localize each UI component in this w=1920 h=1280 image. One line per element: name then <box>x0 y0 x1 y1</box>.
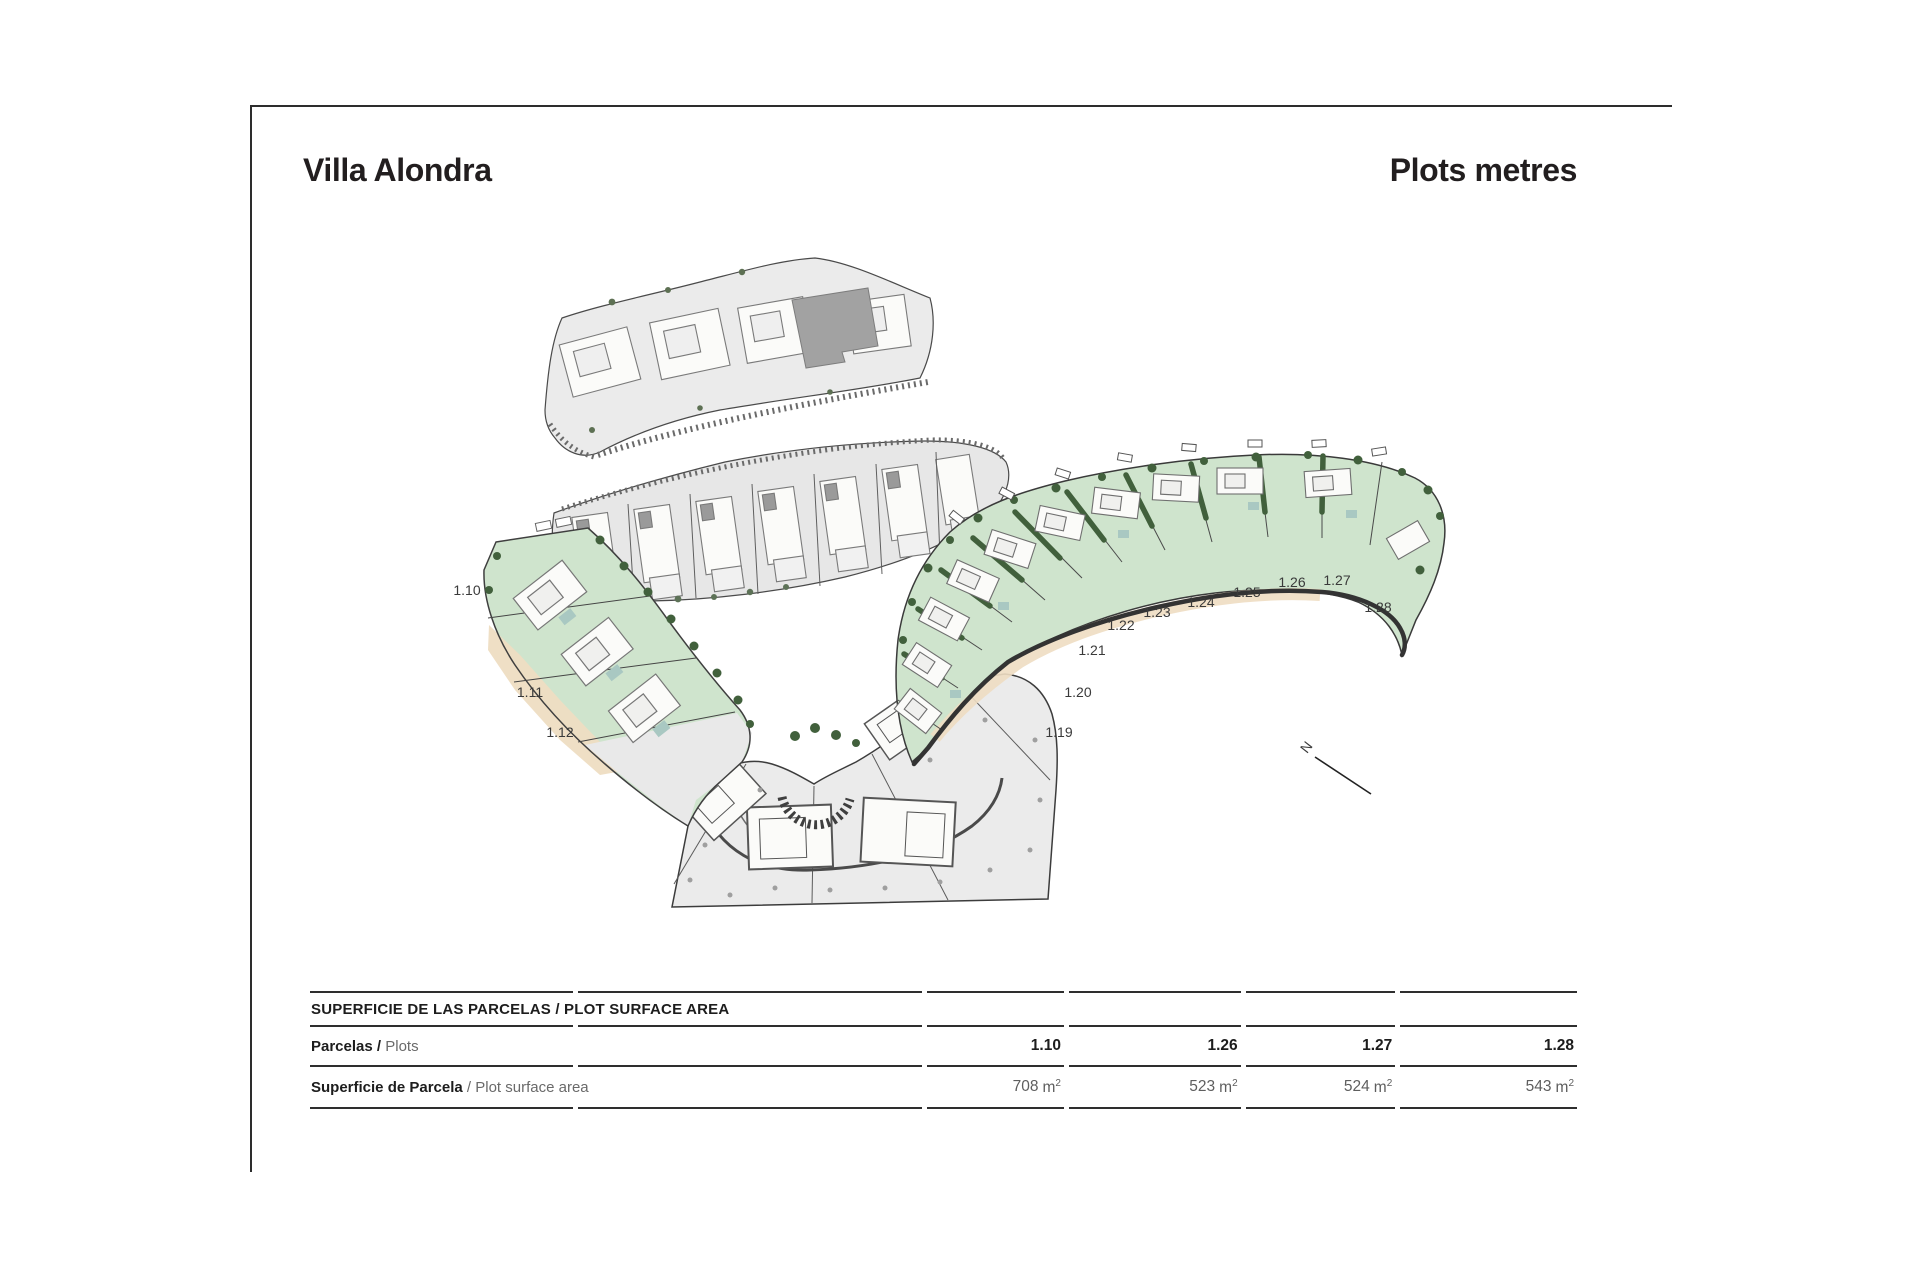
table-header-spacer <box>1069 991 1241 1027</box>
plots-row-label-es: Parcelas / <box>311 1038 381 1055</box>
table-header: SUPERFICIE DE LAS PARCELAS / PLOT SURFAC… <box>310 991 573 1027</box>
plot-number-1-27: 1.27 <box>1246 1027 1396 1067</box>
site-plan: 1.10 1.11 1.12 1.19 1.20 1.21 1.22 1.23 … <box>430 250 1490 970</box>
surface-row-label-es: Superficie de Parcela <box>311 1079 463 1096</box>
surface-row-label-en: / Plot surface area <box>467 1079 589 1096</box>
plot-label-1-10: 1.10 <box>453 582 480 598</box>
plot-label-1-12: 1.12 <box>546 724 573 740</box>
plot-label-1-22: 1.22 <box>1107 617 1134 633</box>
plot-label-1-26: 1.26 <box>1278 574 1305 590</box>
notch-trees <box>790 723 860 747</box>
north-label: N <box>1297 738 1316 756</box>
surface-row-label: Superficie de Parcela / Plot surface are… <box>310 1067 573 1109</box>
plot-number-1-10: 1.10 <box>927 1027 1064 1067</box>
plot-label-1-19: 1.19 <box>1045 724 1072 740</box>
table-header-spacer <box>1246 991 1396 1027</box>
plots-row-label: Parcelas / Plots <box>310 1027 573 1067</box>
plot-label-1-23: 1.23 <box>1143 604 1170 620</box>
page-subtitle: Plots metres <box>1390 154 1577 186</box>
plot-number-1-28: 1.28 <box>1400 1027 1577 1067</box>
brochure-page: Villa Alondra Plots metres <box>0 0 1920 1280</box>
page-title: Villa Alondra <box>303 154 492 186</box>
plot-number-1-26: 1.26 <box>1069 1027 1241 1067</box>
plot-label-1-20: 1.20 <box>1064 684 1091 700</box>
table-row-plots: Parcelas / Plots 1.10 1.26 1.27 1.28 <box>310 1027 1577 1067</box>
surface-value-1-10: 708m2 <box>927 1067 1064 1109</box>
plot-label-1-27: 1.27 <box>1323 572 1350 588</box>
plot-surface-table: SUPERFICIE DE LAS PARCELAS / PLOT SURFAC… <box>305 991 1595 1109</box>
plots-row-label-en: Plots <box>385 1038 418 1055</box>
north-arrow-line <box>1315 757 1371 794</box>
table-header-spacer <box>927 991 1064 1027</box>
plot-label-1-21: 1.21 <box>1078 642 1105 658</box>
table-header-spacer <box>1400 991 1577 1027</box>
plot-label-1-24: 1.24 <box>1187 594 1214 610</box>
top-cluster <box>545 258 933 457</box>
plot-label-1-11: 1.11 <box>517 684 543 700</box>
plot-label-1-28: 1.28 <box>1364 599 1391 615</box>
north-arrow: N <box>1297 738 1371 794</box>
plot-label-1-25: 1.25 <box>1233 584 1260 600</box>
surface-value-1-27: 524m2 <box>1246 1067 1396 1109</box>
surface-value-1-26: 523m2 <box>1069 1067 1241 1109</box>
surface-row-spacer <box>578 1067 922 1109</box>
plots-row-spacer <box>578 1027 922 1067</box>
surface-value-1-28: 543m2 <box>1400 1067 1577 1109</box>
table-row-surface: Superficie de Parcela / Plot surface are… <box>310 1067 1577 1109</box>
